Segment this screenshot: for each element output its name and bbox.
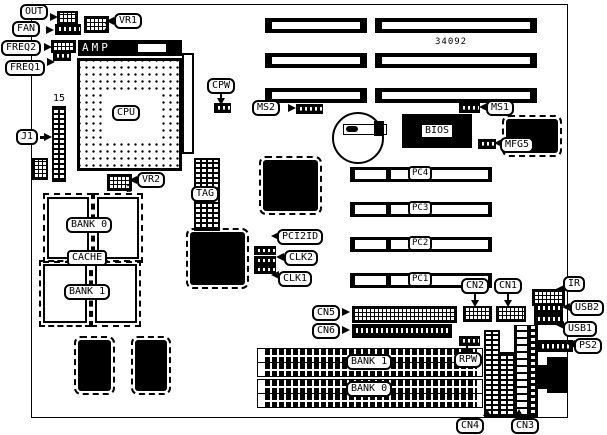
cn4-pointer [483,409,491,416]
cpu-callout: CPU [112,105,140,121]
left-edge-header [32,158,48,180]
isa-slot-6 [375,88,537,103]
bios-label: BIOS [420,123,454,139]
amp-window [138,44,166,52]
battery-pin-cap [346,126,358,132]
vr1-pointer [106,17,114,25]
pci-slot-key [386,237,391,252]
isa-slot-4 [375,53,537,68]
motherboard-diagram: 34092 OUT FAN FREQ2 FREQ1 2 VR1 AMP CPU … [0,0,607,435]
isa-slot-stripe [382,22,530,29]
ms1-callout: MS1 [486,100,514,116]
clk1-callout: CLK1 [278,271,312,287]
cn2-callout: CN2 [461,278,489,294]
ms1-header [459,103,480,113]
dram-chip-2 [135,340,167,391]
board-number: 34092 [435,37,467,47]
ps2-callout: PS2 [574,338,602,354]
cn6-header [352,324,452,338]
simm-bank1-callout: BANK 1 [346,354,392,370]
ir-callout: IR [563,276,585,292]
freq2-pointer [44,43,52,51]
socket-lever [182,53,194,154]
cn4-callout: CN4 [456,418,484,434]
battery-clip [374,121,384,136]
usb2-header [534,303,563,314]
isa-slot-stripe [272,22,360,29]
ms2-pointer [288,104,296,112]
vr2-callout: VR2 [137,172,165,188]
cn4-connector [484,330,500,418]
cn6-pointer [342,326,350,334]
cn2-pointer [471,300,479,307]
rpw-callout: RPW [454,352,482,368]
out-pointer [50,13,58,21]
isa-slot-3 [265,53,367,68]
pci-slot-key [386,167,391,182]
pci-slot-pc3: PC3 [350,202,492,217]
j1-callout: J1 [16,129,38,145]
isa-slot-stripe [382,57,530,64]
pci2id-callout: PCI2ID [277,229,323,245]
freq1-callout: FREQ1 [5,60,45,76]
fan-callout: FAN [12,21,40,37]
cn5-pointer [342,308,350,316]
vr2-pointer [129,176,137,184]
usb1-callout: USB1 [563,321,597,337]
cn1-pointer [504,300,512,307]
battery [332,112,384,164]
isa-slot-stripe [272,57,360,64]
out-jumper [57,11,78,25]
cn5-header [352,306,457,323]
ms2-header [296,104,323,114]
cn3-power-connector [514,325,538,417]
pc1-label: PC1 [408,272,432,287]
keyboard-port [547,357,567,393]
freq1-jumper [53,51,71,61]
keyboard-port-step [538,365,548,389]
isa-slot-1 [265,18,367,33]
pci-slot-pc4: PC4 [350,167,492,182]
simm-bank0-callout: BANK 0 [346,381,392,397]
simm-channel [263,400,477,402]
isa-slot-5 [265,88,367,103]
j1-connector [52,106,66,182]
isa-slot-stripe [272,92,360,99]
cn3-pointer [515,409,523,416]
cn3-callout: CN3 [511,418,539,434]
cn1-callout: CN1 [494,278,522,294]
cpw-pointer [217,98,225,105]
usb2-pointer [562,303,570,311]
mfg5-callout: MFG5 [500,137,534,153]
cache-callout: CACHE [67,250,107,266]
cn2-header [463,306,492,322]
pci-slot-key [386,273,391,288]
rpw-header [459,336,480,346]
pc4-label: PC4 [408,166,432,181]
freq1-pointer [47,58,55,66]
isa-slot-stripe [382,92,530,99]
fan-pointer [46,26,54,34]
cpw-callout: CPW [207,78,235,94]
ms2-callout: MS2 [252,100,280,116]
pc3-label: PC3 [408,201,432,216]
vr2-pin-number: 2 [126,185,132,195]
amp-label: AMP [82,41,111,54]
vr1-callout: VR1 [114,13,142,29]
fan-header [55,24,81,35]
tag-callout: TAG [191,186,219,202]
out-callout: OUT [20,4,48,20]
cache-bank0-callout: BANK 0 [66,217,112,233]
isa-slot-2 [375,18,537,33]
chipset-chip-1 [263,160,318,211]
cn6-callout: CN6 [312,323,340,339]
clk2-callout: CLK2 [284,250,318,266]
amp-bar: AMP [78,40,182,56]
pci2id-jumper [254,246,276,255]
j1-pointer [44,133,52,141]
cn5-callout: CN5 [312,305,340,321]
pc2-label: PC2 [408,236,432,251]
cn1-header [496,306,526,322]
usb2-callout: USB2 [570,300,604,316]
clk2-pointer [276,253,284,261]
pci-slot-pc2: PC2 [350,237,492,252]
mid-edge-connector [499,352,515,418]
j1-pin-number: 15 [53,94,65,104]
freq2-callout: FREQ2 [1,40,41,56]
clk2-jumper [254,256,276,265]
cache-bank1-callout: BANK 1 [64,284,110,300]
chipset-chip-2 [190,232,245,285]
pci-slot-key [386,202,391,217]
dram-chip-1 [78,340,111,391]
